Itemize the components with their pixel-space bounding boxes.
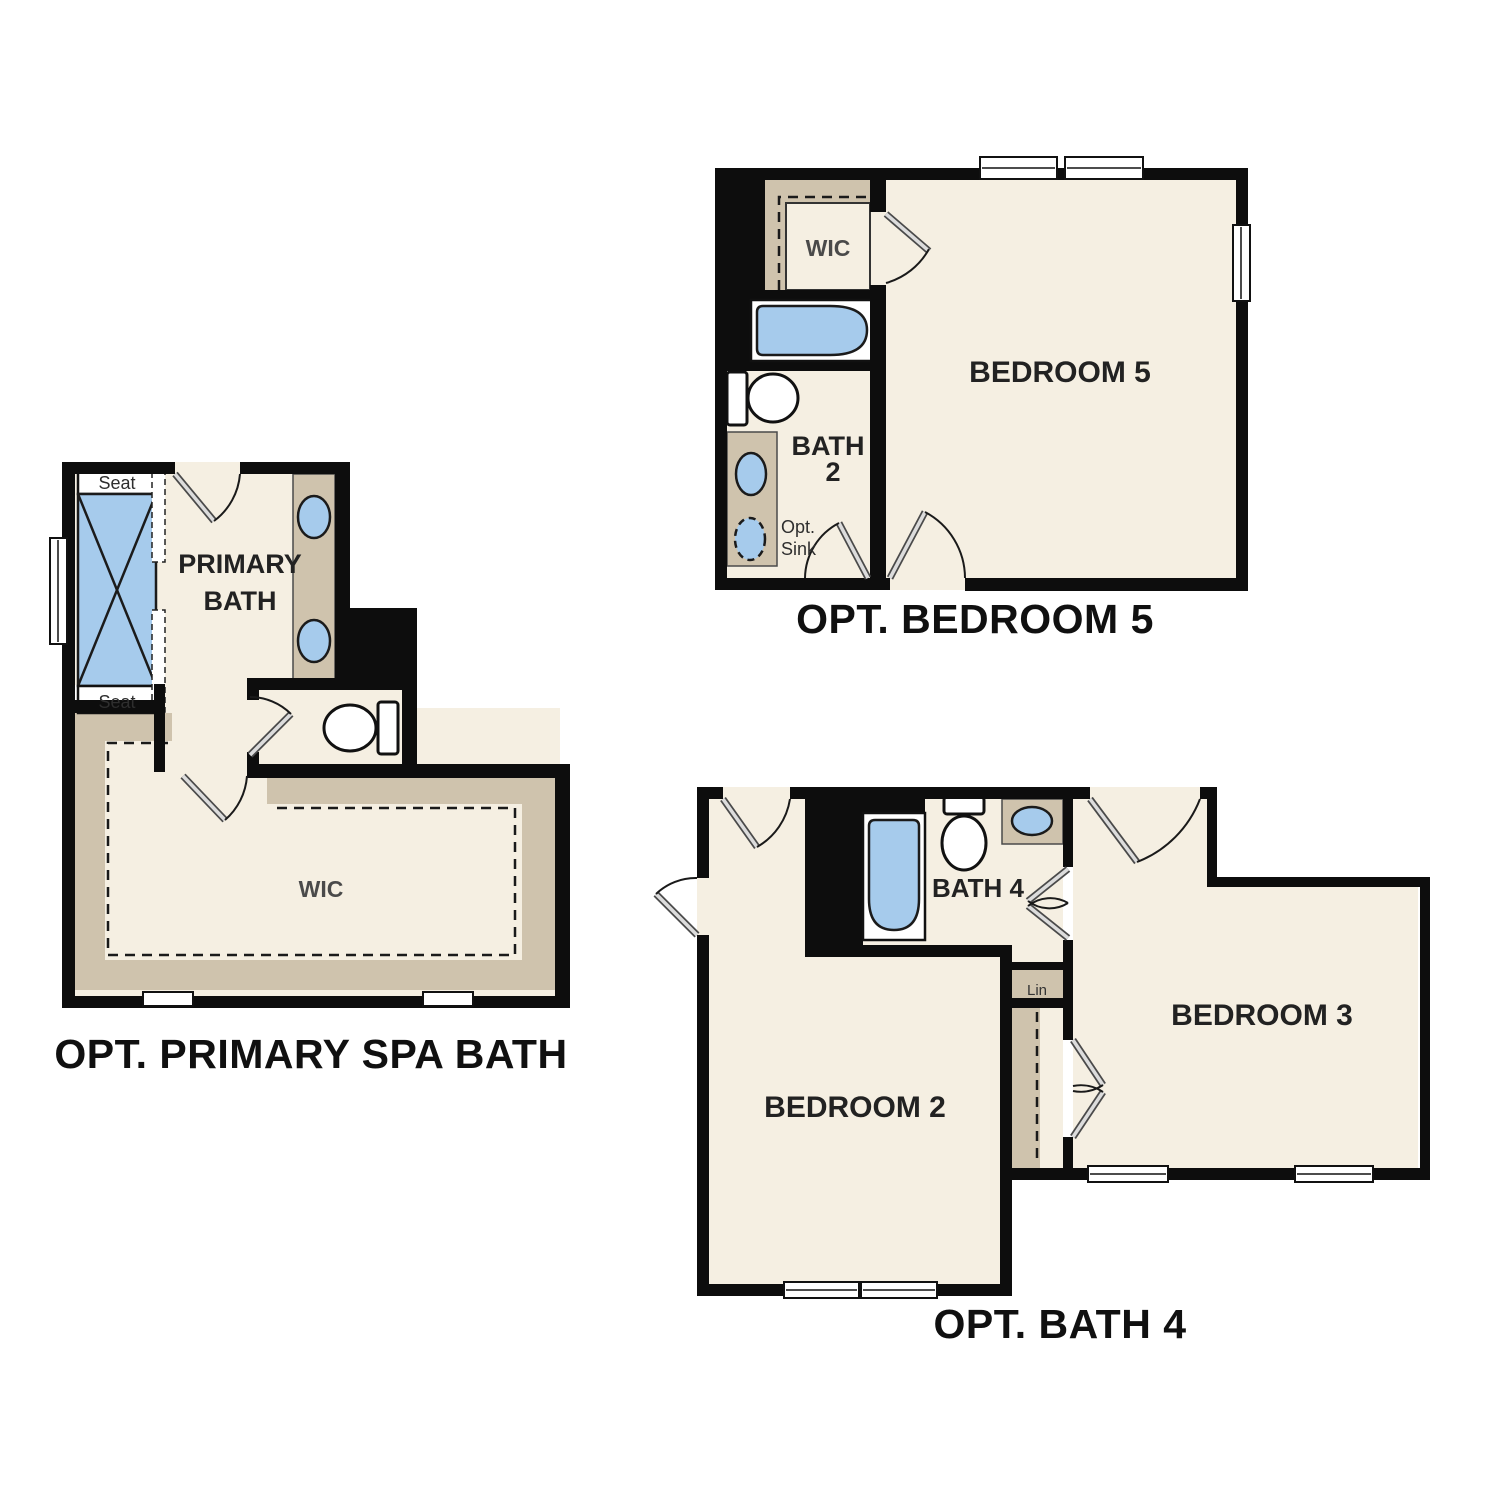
- wall-vent: [143, 992, 193, 1006]
- wall: [1063, 793, 1073, 867]
- plan-caption: OPT. BATH 4: [933, 1301, 1186, 1347]
- closet-shelf: [75, 713, 105, 990]
- room-label-primary-bath: BATH: [204, 586, 277, 616]
- room-label-bedroom-3: BEDROOM 3: [1171, 999, 1353, 1032]
- seat-label: Seat: [98, 473, 135, 493]
- wall: [1000, 945, 1012, 1296]
- wall: [790, 787, 1090, 799]
- shower-glass: [152, 472, 165, 562]
- closet-shelf: [267, 778, 555, 804]
- room-label-bath-2: 2: [825, 457, 840, 487]
- plan-opt-bath-4: BATH 4 Lin BEDROOM 2 BEDROOM 3 OPT. BATH…: [656, 787, 1430, 1347]
- wall: [1063, 1137, 1073, 1168]
- wall-chase: [347, 608, 417, 690]
- toilet-tank: [727, 372, 747, 425]
- sink: [736, 453, 766, 495]
- floor-plan-sheet: Seat Seat PRIMARY BATH WIC OPT. PRIMARY …: [0, 0, 1500, 1500]
- door-opening: [175, 462, 240, 476]
- linen-label: Lin: [1027, 982, 1047, 999]
- wall-chase: [805, 799, 863, 945]
- optional-sink: [735, 518, 765, 560]
- wall: [335, 462, 350, 690]
- wall-chase: [727, 180, 765, 290]
- plan-caption: OPT. PRIMARY SPA BATH: [54, 1031, 567, 1077]
- wall: [1012, 998, 1063, 1008]
- room-label-wic: WIC: [299, 876, 344, 902]
- wall-chase: [727, 300, 751, 363]
- floor-plan-canvas: Seat Seat PRIMARY BATH WIC OPT. PRIMARY …: [0, 0, 1500, 1500]
- wall: [727, 361, 886, 371]
- toilet-tank: [944, 797, 984, 814]
- plan-opt-primary-spa-bath: Seat Seat PRIMARY BATH WIC OPT. PRIMARY …: [50, 462, 570, 1077]
- plan-caption: OPT. BEDROOM 5: [796, 596, 1154, 642]
- door-opening: [1090, 787, 1200, 799]
- wall: [154, 684, 165, 772]
- wall: [1207, 877, 1430, 887]
- toilet-tank: [378, 702, 398, 754]
- wall: [1063, 940, 1073, 1040]
- seat-label: Seat: [98, 692, 135, 712]
- closet-shelf: [75, 960, 527, 990]
- room-label-primary-bath: PRIMARY: [178, 549, 302, 579]
- wall: [870, 285, 886, 582]
- bathtub: [869, 820, 919, 930]
- room-label-bedroom-2: BEDROOM 2: [764, 1091, 946, 1124]
- sink: [1012, 807, 1052, 835]
- toilet: [748, 374, 798, 422]
- door-leaf: [656, 894, 697, 935]
- bathtub: [757, 306, 867, 355]
- wall: [1012, 962, 1063, 970]
- wall-vent: [423, 992, 473, 1006]
- door-opening: [890, 578, 965, 590]
- wall: [1207, 787, 1217, 887]
- closet-shelf: [522, 780, 555, 990]
- door-opening: [697, 878, 709, 935]
- opt-sink-label: Sink: [781, 539, 817, 559]
- opt-sink-label: Opt.: [781, 517, 815, 537]
- wall: [870, 180, 886, 212]
- wall: [240, 462, 347, 474]
- plan-opt-bedroom-5: WIC BEDROOM 5 BATH 2 Opt. Sink OPT. BEDR…: [715, 157, 1250, 642]
- toilet: [324, 705, 376, 751]
- room-label-wic: WIC: [806, 235, 851, 261]
- sink: [298, 620, 330, 662]
- door-opening: [723, 787, 790, 799]
- wall: [62, 996, 570, 1008]
- wall: [555, 768, 570, 1008]
- wall: [697, 935, 709, 1296]
- wall: [805, 945, 1012, 957]
- wall: [715, 578, 890, 590]
- wall: [965, 578, 1248, 591]
- door-swing: [656, 878, 697, 894]
- wall: [1420, 877, 1430, 1180]
- room-label-bath-4: BATH 4: [932, 873, 1025, 903]
- room-label-bedroom-5: BEDROOM 5: [969, 356, 1151, 389]
- toilet: [942, 816, 986, 870]
- wall-chase: [863, 799, 925, 813]
- wall: [697, 787, 709, 878]
- wall: [727, 290, 886, 300]
- wall: [715, 168, 727, 590]
- floor: [1073, 799, 1418, 1168]
- sink: [298, 496, 330, 538]
